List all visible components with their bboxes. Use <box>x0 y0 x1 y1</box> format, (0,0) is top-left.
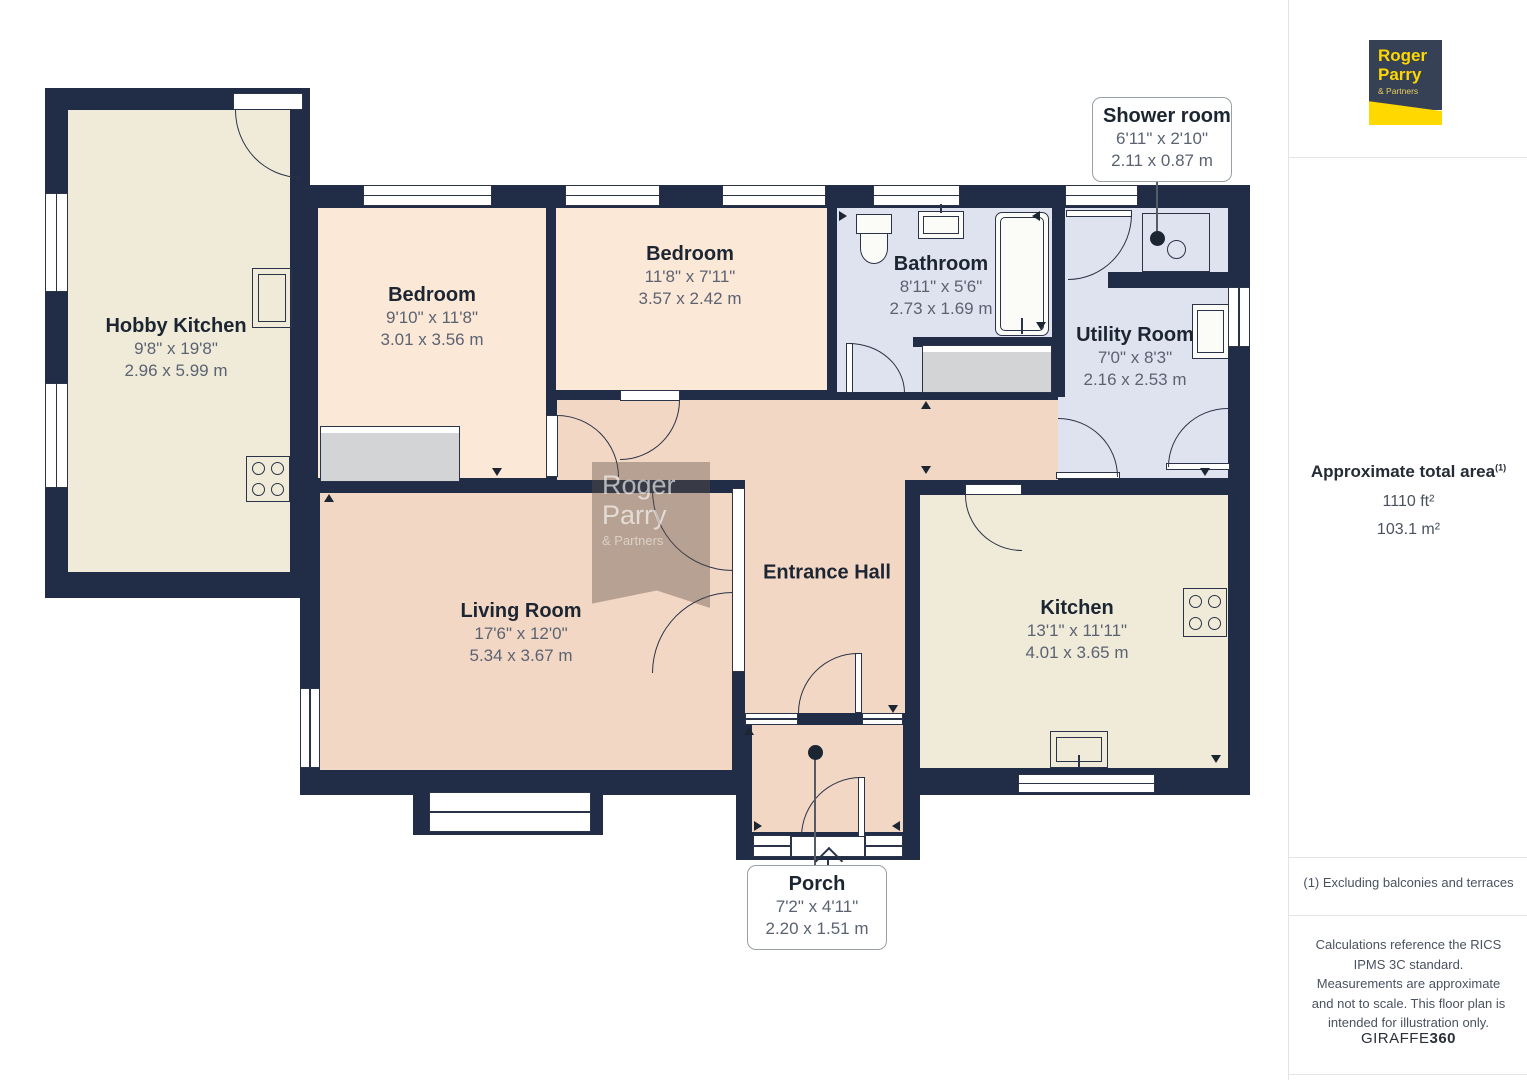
total-area-footnote-ref: (1) <box>1495 462 1506 472</box>
window-bathroom-top <box>873 185 960 206</box>
kitchen-stove-icon <box>1183 588 1227 637</box>
room-label-hobby-kitchen: Hobby Kitchen 9'8" x 19'8" 2.96 x 5.99 m <box>105 315 246 383</box>
total-area-title: Approximate total area(1) <box>1289 462 1527 482</box>
bathroom-sink-inner <box>923 216 959 234</box>
window-kitchen-bottom <box>1018 774 1155 793</box>
shower-room-callout: Shower room 6'11" x 2'10" 2.11 x 0.87 m <box>1092 97 1232 182</box>
dim-marker <box>1032 211 1040 221</box>
total-area-block: Approximate total area(1) 1110 ft²103.1 … <box>1289 462 1527 544</box>
dim-marker <box>921 401 931 409</box>
total-area-metric: 103.1 m² <box>1377 521 1440 538</box>
dim-marker <box>492 468 502 476</box>
bathtub-inner <box>1000 217 1044 331</box>
dim-marker <box>892 821 900 831</box>
room-label-bathroom: Bathroom 8'11" x 5'6" 2.73 x 1.69 m <box>889 253 992 321</box>
room-label-entrance-hall: Entrance Hall <box>763 562 891 585</box>
wall-bathroom-right <box>1052 185 1065 397</box>
dim-marker <box>754 821 762 831</box>
window-living-left <box>300 688 320 768</box>
dim-marker <box>1200 468 1210 476</box>
room-label-utility-room: Utility Room 7'0" x 8'3" 2.16 x 2.53 m <box>1076 324 1194 392</box>
window-utility-right <box>1228 287 1250 347</box>
window-living-bay <box>429 792 591 832</box>
area-footnote: (1) Excluding balconies and terraces <box>1299 875 1518 890</box>
window-hobby-left-2 <box>45 383 68 488</box>
kitchen-door-leaf <box>965 484 1022 495</box>
window-porch-inner-right <box>862 713 903 725</box>
room-label-bedroom-2: Bedroom 11'8" x 7'11" 3.57 x 2.42 m <box>638 243 741 311</box>
sidebar-divider <box>1289 1074 1527 1075</box>
window-bedroom2-top-2 <box>722 185 826 206</box>
porch-callout-line <box>814 752 816 866</box>
watermark-line2: Parry <box>602 500 710 530</box>
dim-marker <box>921 466 931 474</box>
window-porch-front-left <box>753 835 791 857</box>
window-porch-inner-left <box>745 713 798 725</box>
window-hobby-left-1 <box>45 193 68 292</box>
living-door-opening <box>732 488 745 672</box>
hobby-stove-icon <box>246 456 290 502</box>
logo-line1: Roger <box>1378 47 1442 66</box>
wall-shower-utility <box>1108 272 1228 288</box>
bathroom-tap-icon <box>940 204 942 213</box>
watermark-line3: & Partners <box>602 533 710 548</box>
shower-head-icon <box>1167 240 1186 259</box>
floorplan-page: Roger Parry & Partners Hobby Kitchen 9'8… <box>0 0 1527 1080</box>
kitchen-tap-icon <box>1078 755 1080 768</box>
wardrobe <box>320 426 460 482</box>
hobby-door-leaf <box>233 93 303 110</box>
bathtub-tap-icon <box>1021 318 1023 334</box>
window-porch-front-right <box>865 835 903 857</box>
dim-marker <box>1211 755 1221 763</box>
disclaimer-text: Calculations reference the RICS IPMS 3C … <box>1311 935 1506 1033</box>
dim-marker <box>1036 322 1046 330</box>
info-sidebar: Roger Parry & Partners Approximate total… <box>1288 0 1527 1080</box>
logo-line2: Parry <box>1378 66 1442 85</box>
watermark-line1: Roger <box>602 470 710 500</box>
toilet-bowl-icon <box>860 233 888 264</box>
dim-marker <box>839 211 847 221</box>
dim-marker <box>888 705 898 713</box>
cupboard <box>922 345 1052 393</box>
sidebar-divider <box>1289 157 1527 158</box>
sidebar-divider <box>1289 857 1527 858</box>
total-area-imperial: 1110 ft²103.1 m² <box>1289 488 1527 544</box>
toilet-tank-icon <box>856 214 892 234</box>
room-label-kitchen: Kitchen 13'1" x 11'11" 4.01 x 3.65 m <box>1025 597 1128 665</box>
window-bedroom2-top-1 <box>565 185 660 206</box>
shower-callout-dot <box>1150 231 1165 246</box>
hobby-sink-inner <box>258 274 286 322</box>
washer-inner <box>1197 310 1224 353</box>
porch-callout-dot <box>808 745 823 760</box>
room-label-bedroom-1: Bedroom 9'10" x 11'8" 3.01 x 3.56 m <box>380 284 483 352</box>
window-shower-top <box>1065 185 1138 206</box>
room-label-living-room: Living Room 17'6" x 12'0" 5.34 x 3.67 m <box>460 600 581 668</box>
giraffe360-brand: GIRAFFE360 <box>1289 1030 1527 1047</box>
dim-marker <box>744 727 754 735</box>
sidebar-divider <box>1289 915 1527 916</box>
logo-line3: & Partners <box>1378 86 1442 96</box>
porch-callout: Porch 7'2" x 4'11" 2.20 x 1.51 m <box>747 865 887 950</box>
dim-marker <box>324 494 334 502</box>
window-bedroom1-top <box>363 185 492 206</box>
agency-logo: Roger Parry & Partners <box>1369 40 1442 110</box>
watermark-logo: Roger Parry & Partners <box>592 462 710 608</box>
